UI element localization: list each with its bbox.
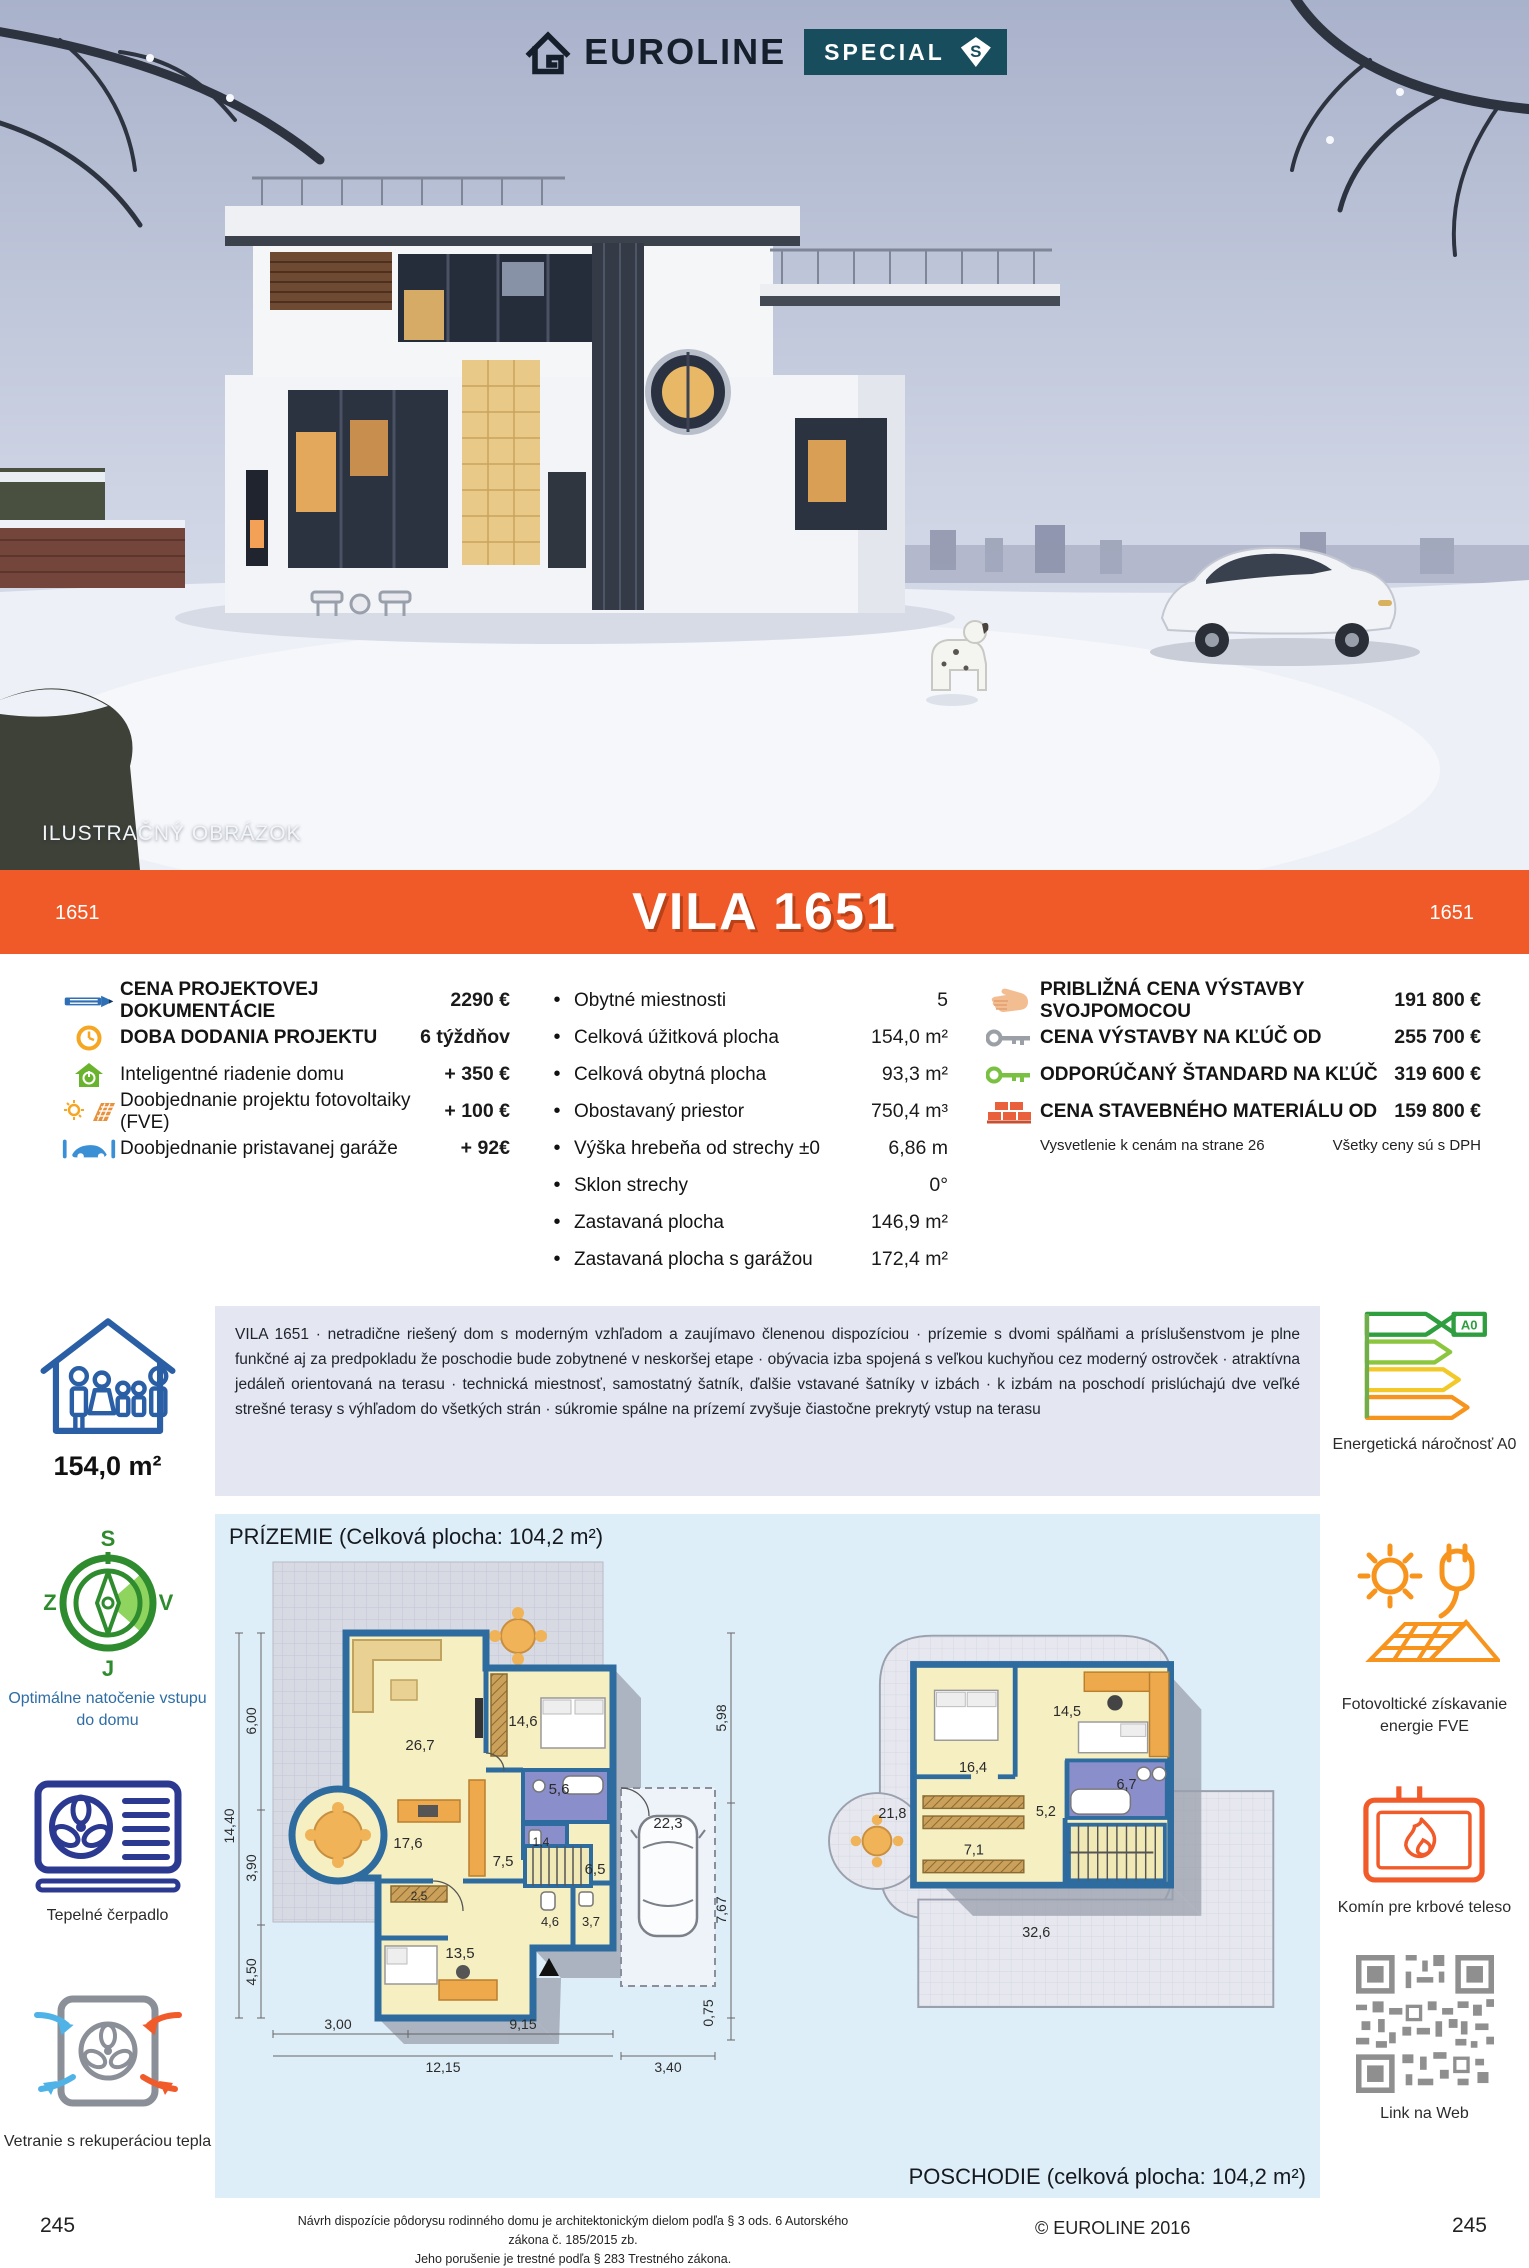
house-photo: EUROLINE SPECIAL S ILUSTRAČNÝ OBRÁZOK [0, 0, 1529, 870]
dim-label: 7,67 [713, 1896, 729, 1923]
spec-label: Zastavaná plocha [574, 1212, 871, 1234]
compass-caption: Optimálne natočenie vstupu do domu [0, 1688, 215, 1731]
spec-label: DOBA DODANIA PROJEKTU [120, 1027, 420, 1049]
pencil-icon [58, 992, 120, 1010]
spec-label: Doobjednanie projektu fotovoltaiky (FVE) [120, 1090, 444, 1134]
bullet-icon: • [540, 1137, 574, 1160]
ground-floor-plan: 6,00 3,90 4,50 14,40 3,00 9,15 12,15 3,4… [223, 1548, 823, 2078]
specs-left-column: CENA PROJEKTOVEJ DOKUMENTÁCIE 2290 € DOB… [58, 982, 510, 1278]
page-number-right: 245 [1452, 2214, 1487, 2238]
room-area-label: 7,5 [493, 1853, 514, 1870]
legal-line-2: Jeho porušenie je trestné podľa § 283 Tr… [288, 2250, 858, 2268]
dim-label: 9,15 [509, 2016, 536, 2032]
spec-row: Doobjednanie projektu fotovoltaiky (FVE)… [58, 1093, 510, 1130]
price-note: Vysvetlenie k cenám na strane 26 [1040, 1137, 1333, 1154]
project-description: VILA 1651 · netradične riešený dom s mod… [215, 1306, 1320, 1496]
spec-value: 2290 € [450, 989, 510, 1012]
legal-text: Návrh dispozície pôdorysu rodinného domu… [288, 2212, 858, 2268]
bullet-icon: • [540, 1211, 574, 1234]
special-s-icon: S [961, 37, 991, 67]
spec-row: CENA VÝSTAVBY NA KĽÚČ OD 255 700 € [978, 1019, 1481, 1056]
room-area-label: 7,1 [964, 1842, 984, 1858]
spec-notes: Vysvetlenie k cenám na strane 26 Všetky … [978, 1130, 1481, 1160]
spec-label: Doobjednanie pristavanej garáže [120, 1138, 461, 1160]
spec-value: 159 800 € [1394, 1100, 1481, 1123]
room-area-label: 16,4 [959, 1760, 987, 1776]
ventilation-icon [33, 1981, 183, 2121]
spec-label: Obostavaný priestor [574, 1101, 871, 1123]
spec-row: •Obytné miestnosti5 [540, 982, 948, 1019]
summary-block: 154,0 m² [0, 1306, 215, 1496]
chimney-caption: Komín pre krbové teleso [1338, 1897, 1511, 1919]
room-area-label: 2,5 [411, 1889, 428, 1903]
spec-row: •Celková úžitková plocha154,0 m² [540, 1019, 948, 1056]
spec-row: •Celková obytná plocha93,3 m² [540, 1056, 948, 1093]
photovoltaic-icon [1350, 1534, 1500, 1684]
room-area-label: 26,7 [405, 1737, 434, 1754]
dim-label: 0,75 [700, 1999, 716, 2026]
room-area-label: 1,4 [533, 1835, 550, 1849]
spec-value: 319 600 € [1394, 1063, 1481, 1086]
spec-value: 93,3 m² [882, 1063, 948, 1086]
compass-east-label: V [158, 1590, 173, 1615]
spec-label: Sklon strechy [574, 1175, 929, 1197]
spec-value: + 350 € [444, 1063, 510, 1086]
special-badge-label: SPECIAL [824, 39, 945, 66]
room-area-label: 4,6 [541, 1914, 559, 1929]
dim-label: 12,15 [425, 2059, 460, 2075]
room-area-label: 32,6 [1022, 1925, 1050, 1941]
room-area-label: 21,8 [878, 1806, 906, 1822]
spec-row: Inteligentné riadenie domu + 350 € [58, 1056, 510, 1093]
energy-label-icon: A0 [1360, 1306, 1490, 1424]
spec-label: Celková úžitková plocha [574, 1027, 871, 1049]
bullet-icon: • [540, 989, 574, 1012]
garage-icon [58, 1137, 120, 1161]
bullet-icon: • [540, 1063, 574, 1086]
glass-block-wall [462, 360, 540, 565]
spec-value: 6,86 m [888, 1137, 948, 1160]
brand-name: EUROLINE [584, 31, 786, 73]
room-area-label: 14,6 [508, 1713, 537, 1730]
bricks-icon [978, 1100, 1040, 1124]
upper-floor-plan: 16,4 14,5 6,7 5,2 7,1 21,8 32,6 [827, 1580, 1307, 2031]
spec-row: •Sklon strechy0° [540, 1167, 948, 1204]
spec-row: •Obostavaný priestor750,4 m³ [540, 1093, 948, 1130]
heatpump-block: Tepelné čerpadlo [33, 1779, 183, 1927]
room-area-label: 14,5 [1053, 1704, 1081, 1720]
spec-label: PRIBLIŽNÁ CENA VÝSTAVBY SVOJPOMOCOU [1040, 979, 1394, 1023]
dim-label: 6,00 [243, 1707, 259, 1734]
description-row: 154,0 m² VILA 1651 · netradične riešený … [0, 1306, 1529, 1496]
right-rail: Fotovoltické získavanie energie FVE Komí… [1320, 1514, 1529, 2198]
solar-icon [58, 1099, 120, 1125]
plan-code-left: 1651 [55, 902, 100, 925]
spec-row: PRIBLIŽNÁ CENA VÝSTAVBY SVOJPOMOCOU 191 … [978, 982, 1481, 1019]
ventilation-block: Vetranie s rekuperáciou tepla [4, 1981, 211, 2153]
vat-note: Všetky ceny sú s DPH [1333, 1137, 1481, 1154]
spec-row: •Zastavaná plocha146,9 m² [540, 1204, 948, 1241]
plans-row: S Z V J Optimálne natočenie vstupu do do… [0, 1514, 1529, 2198]
photo-caption: ILUSTRAČNÝ OBRÁZOK [42, 822, 302, 846]
bullet-icon: • [540, 1174, 574, 1197]
dim-label: 3,90 [243, 1854, 259, 1881]
bullet-icon: • [540, 1026, 574, 1049]
compass-south-label: J [101, 1656, 113, 1678]
page-number-left: 245 [40, 2214, 75, 2238]
compass-west-label: Z [43, 1590, 56, 1615]
plan-code-right: 1651 [1430, 902, 1475, 925]
room-area-label: 13,5 [445, 1945, 474, 1962]
title-banner: 1651 VILA 1651 1651 [0, 870, 1529, 954]
spec-row: •Výška hrebeňa od strechy ±06,86 m [540, 1130, 948, 1167]
spec-label: Zastavaná plocha s garážou [574, 1249, 871, 1271]
compass-block: S Z V J Optimálne natočenie vstupu do do… [0, 1528, 215, 1731]
specs-section: CENA PROJEKTOVEJ DOKUMENTÁCIE 2290 € DOB… [0, 954, 1529, 1292]
left-rail: S Z V J Optimálne natočenie vstupu do do… [0, 1514, 215, 2198]
spec-label: Celková obytná plocha [574, 1064, 882, 1086]
bullet-icon: • [540, 1100, 574, 1123]
spec-value: + 100 € [444, 1100, 510, 1123]
heat-pump-icon [33, 1779, 183, 1895]
dim-label: 3,40 [654, 2059, 681, 2075]
spec-row: ODPORÚČANÝ ŠTANDARD NA KĽÚČ 319 600 € [978, 1056, 1481, 1093]
room-area-label: 6,7 [1117, 1777, 1137, 1793]
spec-row: •Zastavaná plocha s garážou172,4 m² [540, 1241, 948, 1278]
upper-floor-title: POSCHODIE (celková plocha: 104,2 m²) [909, 2164, 1306, 2190]
chimney-block: Komín pre krbové teleso [1338, 1781, 1511, 1919]
spec-value: 0° [929, 1174, 948, 1197]
spec-value: 154,0 m² [871, 1026, 948, 1049]
room-area-label: 5,2 [1036, 1804, 1056, 1820]
spec-value: 6 týždňov [420, 1026, 510, 1049]
spec-value: 5 [937, 989, 948, 1012]
room-area-label: 5,6 [549, 1781, 570, 1798]
floorplan-area: PRÍZEMIE (Celková plocha: 104,2 m²) [215, 1514, 1320, 2198]
key-gray-icon [978, 1028, 1040, 1048]
compass-icon: S Z V J [38, 1528, 178, 1678]
hand-icon [978, 988, 1040, 1014]
spec-value: 750,4 m³ [871, 1100, 948, 1123]
spec-row: CENA STAVEBNÉHO MATERIÁLU OD 159 800 € [978, 1093, 1481, 1130]
spec-row: CENA PROJEKTOVEJ DOKUMENTÁCIE 2290 € [58, 982, 510, 1019]
key-green-icon [978, 1065, 1040, 1085]
ground-floor-title: PRÍZEMIE (Celková plocha: 104,2 m²) [215, 1514, 1320, 1550]
qr-caption: Link na Web [1380, 2103, 1469, 2125]
spec-value: 172,4 m² [871, 1248, 948, 1271]
compass-north-label: S [100, 1528, 115, 1551]
spec-value: 255 700 € [1394, 1026, 1481, 1049]
page-footer: 245 Návrh dispozície pôdorysu rodinného … [0, 2198, 1529, 2268]
house-family-icon [33, 1306, 183, 1441]
qr-block: Link na Web [1356, 1955, 1494, 2125]
specs-right-column: PRIBLIŽNÁ CENA VÝSTAVBY SVOJPOMOCOU 191 … [978, 982, 1481, 1278]
legal-line-1: Návrh dispozície pôdorysu rodinného domu… [288, 2212, 858, 2250]
qr-code [1356, 1955, 1494, 2093]
bullet-icon: • [540, 1248, 574, 1271]
dim-label: 14,40 [223, 1808, 237, 1843]
spec-label: CENA VÝSTAVBY NA KĽÚČ OD [1040, 1027, 1394, 1049]
house-photo-illustration [0, 0, 1529, 870]
energy-caption: Energetická náročnosť A0 [1333, 1434, 1517, 1456]
room-area-label: 3,7 [582, 1914, 600, 1929]
header-logo: EUROLINE SPECIAL S [0, 26, 1529, 78]
clock-icon [58, 1025, 120, 1051]
smart-home-icon [58, 1062, 120, 1088]
special-badge: SPECIAL S [804, 29, 1007, 75]
total-area-value: 154,0 m² [53, 1451, 161, 1482]
pv-caption: Fotovoltické získavanie energie FVE [1320, 1694, 1529, 1737]
heatpump-caption: Tepelné čerpadlo [47, 1905, 169, 1927]
room-area-label: 6,5 [585, 1861, 606, 1878]
spec-label: Výška hrebeňa od strechy ±0 [574, 1138, 888, 1160]
room-area-label: 17,6 [393, 1835, 422, 1852]
pv-block: Fotovoltické získavanie energie FVE [1320, 1534, 1529, 1737]
spec-label: Inteligentné riadenie domu [120, 1064, 444, 1086]
spec-label: CENA PROJEKTOVEJ DOKUMENTÁCIE [120, 979, 450, 1023]
dim-label: 5,98 [713, 1704, 729, 1731]
dim-label: 4,50 [243, 1958, 259, 1985]
spec-value: 191 800 € [1394, 989, 1481, 1012]
energy-block: A0 Energetická náročnosť A0 [1320, 1306, 1529, 1496]
specs-middle-column: •Obytné miestnosti5 •Celková úžitková pl… [540, 982, 948, 1278]
spec-value: 146,9 m² [871, 1211, 948, 1234]
energy-class-label: A0 [1460, 1317, 1477, 1332]
spec-label: CENA STAVEBNÉHO MATERIÁLU OD [1040, 1101, 1394, 1123]
dim-label: 3,00 [324, 2016, 351, 2032]
euroline-house-icon [522, 26, 574, 78]
ventilation-caption: Vetranie s rekuperáciou tepla [4, 2131, 211, 2153]
copyright: © EUROLINE 2016 [1035, 2218, 1190, 2239]
spec-row: DOBA DODANIA PROJEKTU 6 týždňov [58, 1019, 510, 1056]
spec-label: Obytné miestnosti [574, 990, 937, 1012]
page-title: VILA 1651 [0, 882, 1529, 942]
spec-row: Doobjednanie pristavanej garáže + 92€ [58, 1130, 510, 1167]
room-area-label: 22,3 [653, 1815, 682, 1832]
chimney-icon [1359, 1781, 1489, 1887]
spec-value: + 92€ [461, 1137, 510, 1160]
spec-label: ODPORÚČANÝ ŠTANDARD NA KĽÚČ [1040, 1064, 1394, 1086]
